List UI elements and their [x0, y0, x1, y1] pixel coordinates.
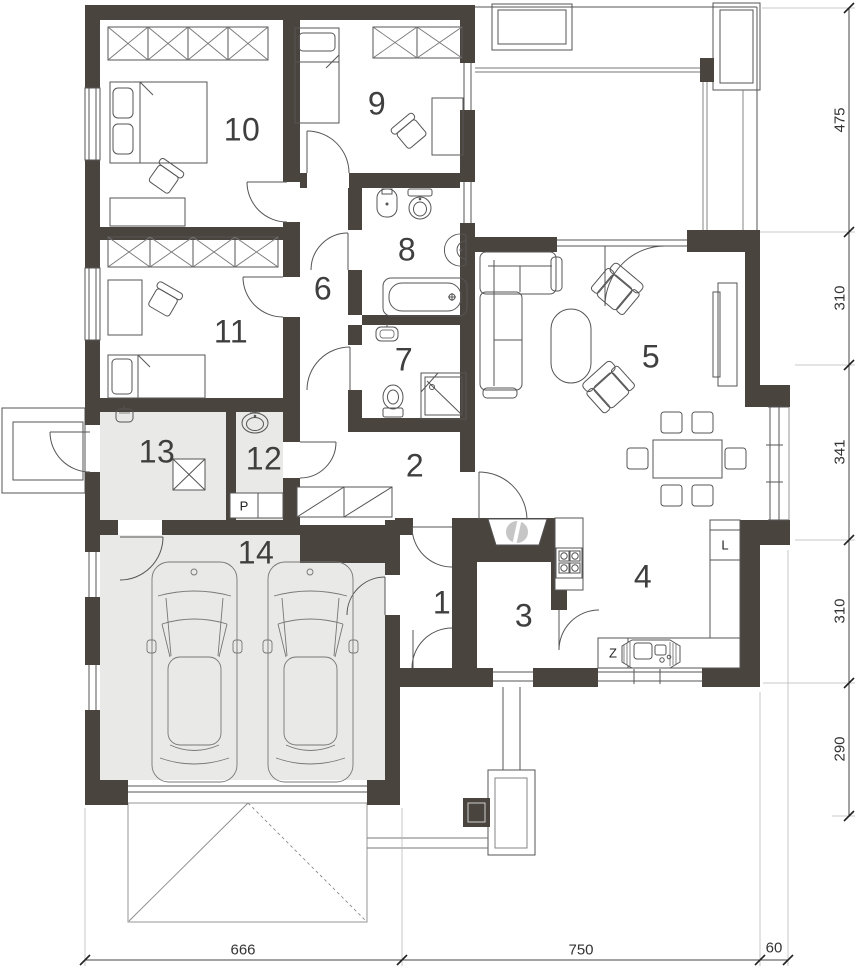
toilet-icon [408, 189, 432, 219]
door-porch [50, 432, 90, 472]
washing-machine-icon [173, 459, 205, 490]
bay-window-living [766, 407, 789, 520]
door-bedroom9 [307, 131, 349, 173]
dim-right-310a: 310 [832, 285, 849, 310]
fireplace-icon [488, 519, 547, 545]
room-label-7: 7 [395, 342, 413, 379]
wardrobe-icon [108, 27, 268, 60]
door-hall1-top [412, 527, 452, 567]
window-terrace-2 [464, 182, 471, 223]
bathtub-icon [383, 278, 467, 316]
bidet-icon [377, 189, 397, 217]
room-label-6: 6 [314, 271, 332, 308]
door-pantry-kitchen [559, 610, 599, 650]
door-living [479, 472, 527, 520]
door-room12 [300, 442, 336, 478]
room-label-1: 1 [433, 585, 451, 622]
side-porch [2, 408, 85, 493]
window-bedroom11 [85, 268, 100, 340]
door-bathroom8 [311, 233, 348, 270]
desk-icon [432, 98, 463, 155]
dim-bottom-666: 666 [230, 942, 255, 959]
closet-box [258, 493, 283, 518]
door-wc7 [307, 347, 350, 390]
terrace-post [700, 58, 714, 82]
room-label-13: 13 [139, 434, 176, 471]
room-label-11: 11 [214, 314, 248, 351]
label-z: Z [609, 646, 617, 661]
room-label-5: 5 [642, 339, 660, 376]
door-bedroom11 [243, 277, 283, 317]
window-garage-1 [89, 552, 96, 597]
door-hall1-bottom [412, 628, 452, 668]
room-label-12: 12 [246, 441, 283, 478]
floor-plan-drawing [0, 0, 859, 970]
tv-cabinet-icon [713, 283, 737, 386]
chair-icon [146, 281, 184, 318]
label-p: P [240, 499, 249, 514]
door-terrace [605, 246, 665, 306]
room-label-14: 14 [238, 535, 275, 572]
kitchen-sink-icon [622, 640, 680, 668]
window-garage-2 [89, 665, 96, 710]
dim-bottom-750: 750 [568, 942, 593, 959]
room-label-9: 9 [368, 86, 386, 123]
chair-icon [390, 112, 429, 151]
sofa-icon [480, 252, 562, 398]
wardrobe-icon [108, 237, 278, 267]
dim-bottom-60: 60 [766, 940, 783, 957]
armchair-icon [580, 358, 637, 414]
front-door [493, 672, 533, 681]
cabinet-icon [297, 487, 392, 517]
window-terrace-1 [464, 63, 471, 110]
stove-icon [555, 518, 583, 590]
coffee-table-icon [551, 309, 591, 383]
room-label-10: 10 [224, 112, 261, 149]
terrace [475, 3, 760, 230]
room-label-2: 2 [406, 448, 424, 485]
floor-plan: 1 2 3 4 5 6 7 8 9 10 11 12 13 14 P L Z 4… [0, 0, 859, 970]
desk-icon [110, 198, 185, 226]
dim-right-310b: 310 [832, 598, 849, 623]
double-bed-icon [110, 82, 207, 163]
dim-right-290: 290 [832, 736, 849, 761]
dining-set-icon [627, 412, 746, 506]
room-label-3: 3 [515, 598, 533, 635]
window-bedroom10 [85, 88, 100, 160]
room-label-4: 4 [634, 559, 652, 596]
wardrobe-icon [373, 27, 462, 58]
single-bed-icon [295, 28, 339, 123]
garage-door [128, 786, 367, 792]
terrace-slider [557, 240, 687, 246]
hand-sink-icon [376, 324, 398, 341]
dim-right-341: 341 [832, 439, 849, 464]
window-kitchen [598, 669, 702, 684]
shower-icon [421, 373, 466, 419]
toilet-icon [383, 385, 403, 417]
desk-icon [108, 280, 142, 335]
room-label-8: 8 [398, 232, 416, 269]
dim-right-475: 475 [832, 107, 849, 132]
single-bed-icon [108, 355, 205, 398]
lamp-post [463, 798, 490, 827]
door-bedroom10 [247, 182, 287, 222]
label-l: L [721, 538, 728, 553]
garage-roof-outline [128, 803, 367, 922]
